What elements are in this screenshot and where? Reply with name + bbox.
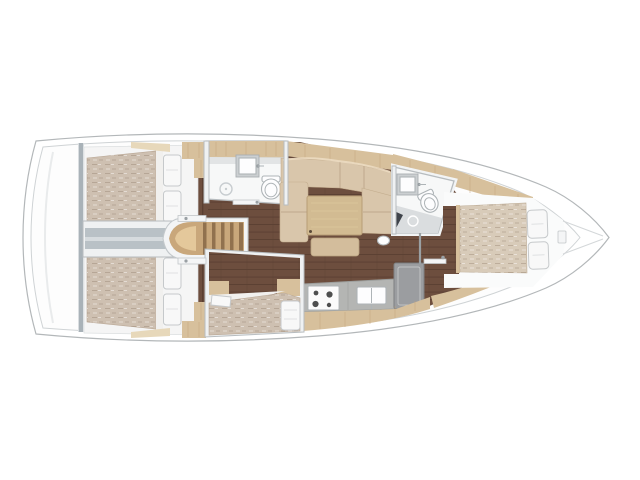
bow-fitting bbox=[558, 231, 566, 243]
pillow bbox=[281, 301, 300, 330]
mattress-quilting bbox=[87, 151, 156, 230]
floor-vent-icon bbox=[378, 236, 390, 245]
bed-sheet bbox=[156, 253, 163, 330]
saloon-table bbox=[307, 196, 362, 235]
ottoman bbox=[311, 238, 359, 256]
stove-icon bbox=[308, 286, 339, 310]
sofa-seat-right bbox=[362, 188, 392, 234]
bed-foot-trim bbox=[456, 205, 460, 273]
head-aft bbox=[206, 141, 286, 205]
mattress-quilting bbox=[87, 250, 156, 329]
aft-cabin-door bbox=[178, 216, 206, 222]
bed-sheet bbox=[156, 151, 163, 228]
wardrobe bbox=[182, 142, 206, 159]
midship-berth-cabin bbox=[205, 249, 304, 337]
step-edge bbox=[239, 223, 243, 255]
aft-cabin-door bbox=[178, 258, 206, 264]
wardrobe bbox=[182, 321, 206, 338]
toilet-icon bbox=[262, 176, 281, 199]
floor-plan-canvas bbox=[0, 0, 640, 480]
seat-cushion bbox=[211, 295, 231, 307]
boat-floor-plan bbox=[0, 0, 640, 480]
bathroom-door bbox=[233, 200, 259, 205]
step-tread bbox=[230, 223, 234, 255]
